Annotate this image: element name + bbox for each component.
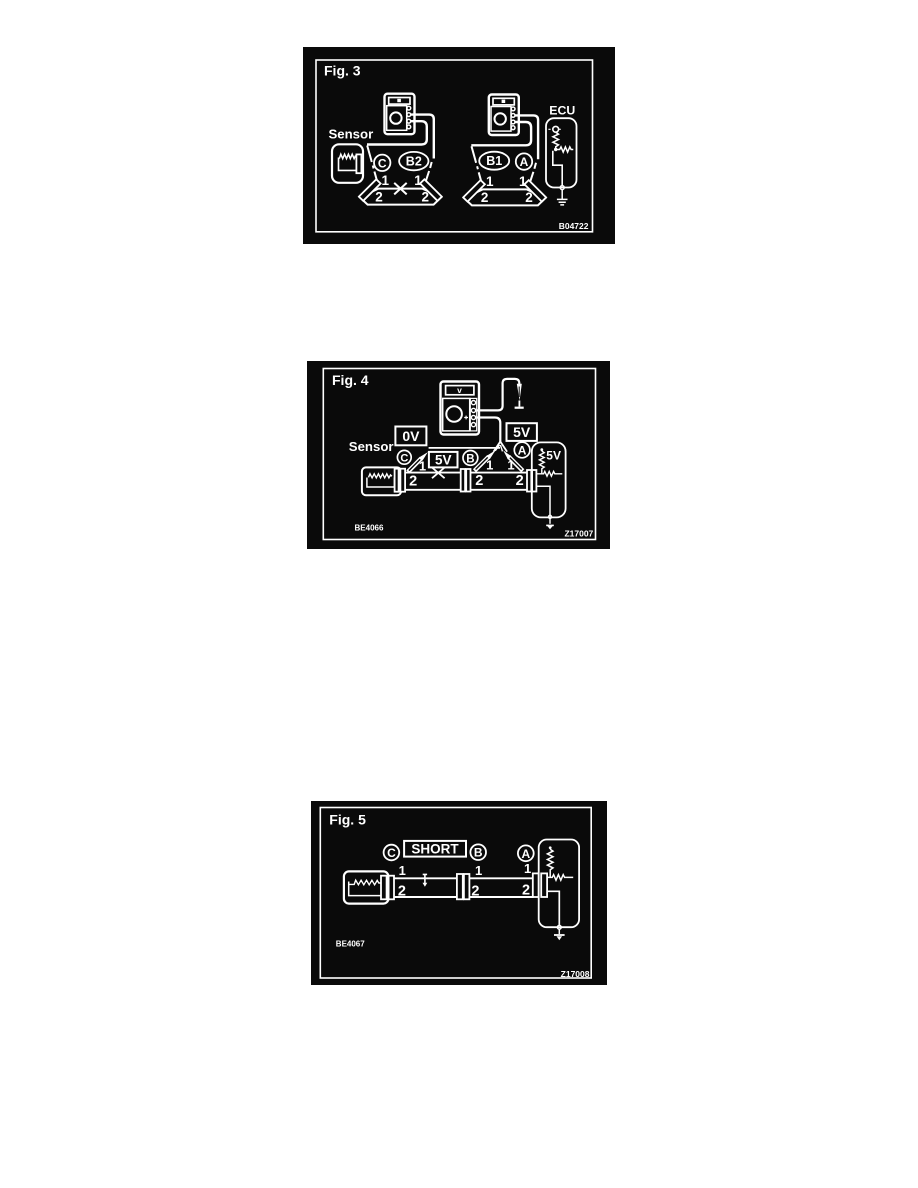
svg-text:A: A — [518, 444, 527, 458]
svg-text:BE4066: BE4066 — [355, 523, 384, 532]
svg-text:1: 1 — [519, 174, 527, 189]
svg-text:2: 2 — [421, 190, 429, 205]
svg-text:v: v — [457, 385, 462, 395]
svg-text:BE4067: BE4067 — [336, 940, 365, 949]
svg-text:1: 1 — [524, 861, 531, 876]
svg-text:1: 1 — [486, 458, 493, 473]
svg-text:1: 1 — [507, 458, 514, 473]
svg-text:C: C — [378, 156, 387, 170]
svg-text:B: B — [466, 453, 474, 465]
svg-text:C: C — [387, 846, 396, 860]
svg-text:5V: 5V — [513, 424, 531, 440]
svg-text:1: 1 — [475, 863, 482, 878]
svg-text:1: 1 — [414, 173, 422, 188]
svg-text:2: 2 — [481, 190, 489, 205]
svg-text:1: 1 — [399, 863, 406, 878]
svg-text:2: 2 — [409, 474, 417, 490]
svg-text:1: 1 — [419, 458, 426, 473]
svg-text:2: 2 — [516, 473, 524, 489]
svg-text:2: 2 — [398, 883, 406, 899]
svg-text:Sensor: Sensor — [329, 127, 374, 142]
svg-text:B1: B1 — [486, 154, 502, 168]
svg-text:Z17008: Z17008 — [561, 969, 590, 979]
svg-text:Fig. 5: Fig. 5 — [329, 811, 366, 827]
svg-text:A: A — [521, 847, 530, 861]
svg-text:Z17007: Z17007 — [564, 529, 593, 539]
svg-text:5V: 5V — [435, 452, 452, 467]
svg-text:5V: 5V — [546, 449, 561, 463]
svg-text:C: C — [400, 453, 408, 465]
svg-text:2: 2 — [525, 190, 533, 205]
svg-text:2: 2 — [475, 473, 483, 489]
svg-text:2: 2 — [471, 883, 479, 899]
svg-text:B04722: B04722 — [559, 221, 589, 231]
svg-text:2: 2 — [522, 883, 530, 899]
svg-text:B: B — [474, 846, 483, 860]
svg-text:A: A — [520, 155, 529, 169]
svg-text:Sensor: Sensor — [349, 439, 394, 454]
svg-text:SHORT: SHORT — [411, 841, 459, 856]
svg-text:Fig. 3: Fig. 3 — [324, 63, 361, 79]
svg-text:1: 1 — [381, 173, 389, 188]
svg-text:B2: B2 — [406, 155, 422, 169]
svg-text:ECU: ECU — [549, 103, 575, 117]
svg-text:0V: 0V — [402, 428, 420, 444]
svg-text:1: 1 — [486, 174, 494, 189]
svg-text:Fig. 4: Fig. 4 — [332, 372, 369, 388]
svg-text:2: 2 — [375, 190, 383, 205]
